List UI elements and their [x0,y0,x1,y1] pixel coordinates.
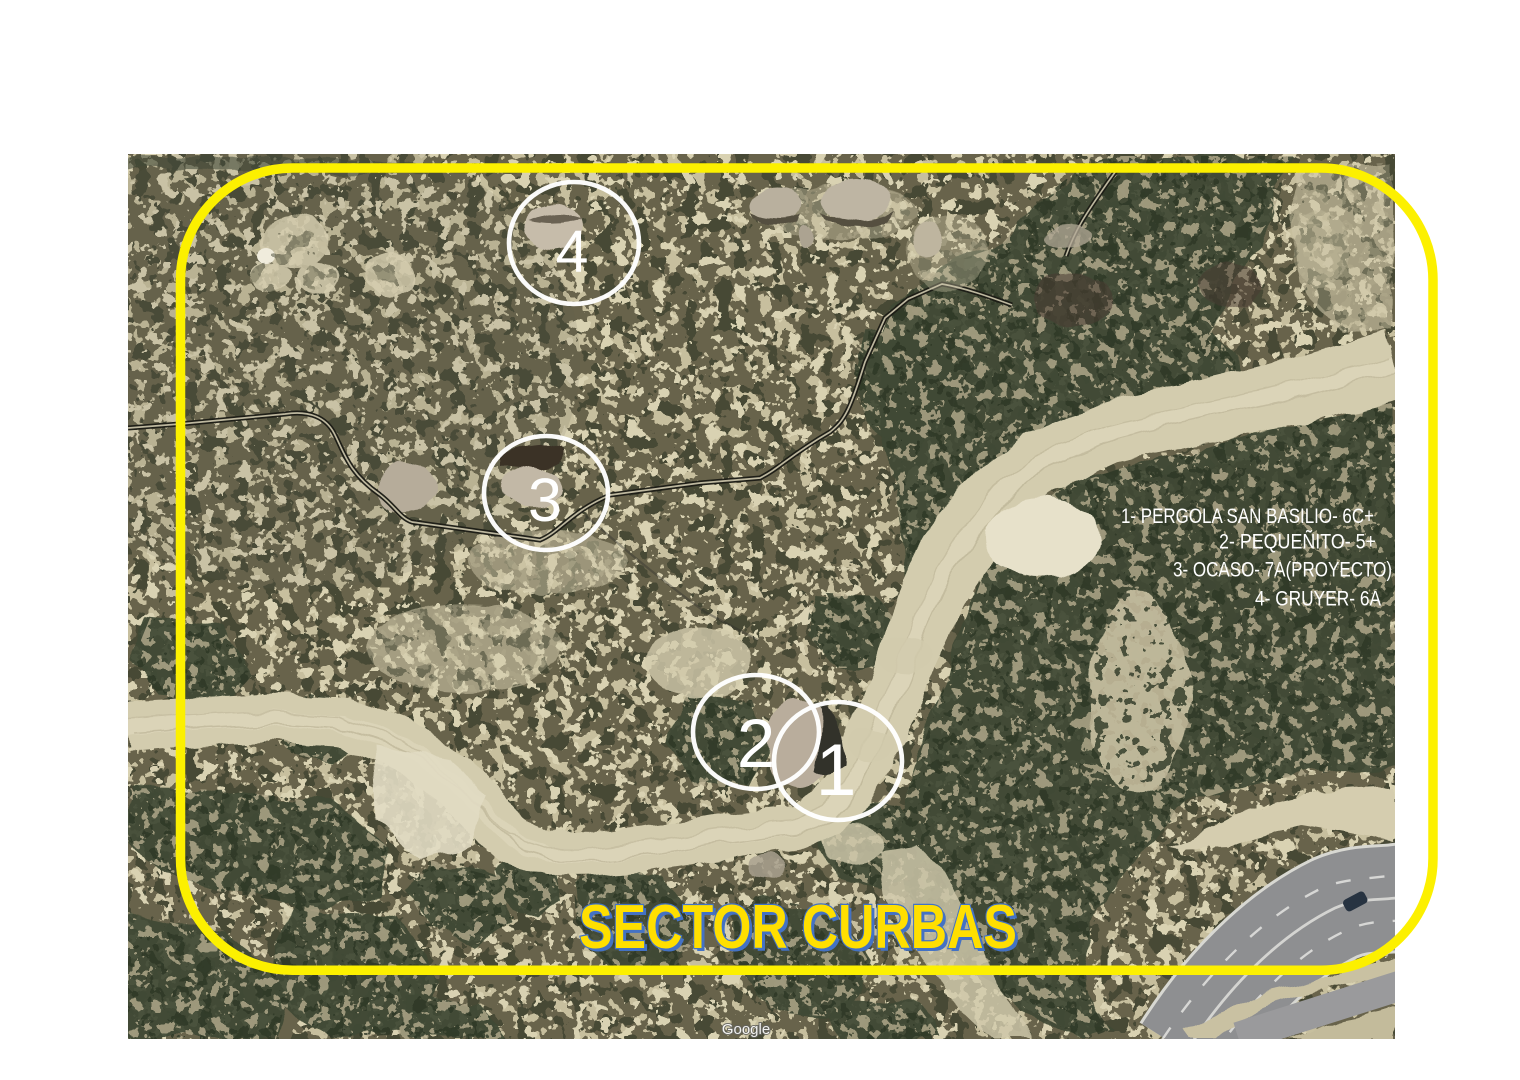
svg-text:4- GRUYER- 6A: 4- GRUYER- 6A [1255,588,1381,611]
svg-text:3- OCASO- 7A(PROYECTO): 3- OCASO- 7A(PROYECTO) [1173,559,1392,582]
svg-text:Google: Google [722,1021,770,1038]
svg-text:4: 4 [556,219,589,285]
svg-text:SECTOR CURBAS: SECTOR CURBAS [579,893,1017,962]
svg-text:2: 2 [737,705,775,782]
svg-text:1- PERGOLA SAN BASILIO- 6C+: 1- PERGOLA SAN BASILIO- 6C+ [1121,505,1374,528]
svg-text:3: 3 [528,466,562,534]
svg-text:2- PEQUEÑITO- 5+: 2- PEQUEÑITO- 5+ [1219,530,1376,554]
svg-text:1: 1 [816,730,857,811]
